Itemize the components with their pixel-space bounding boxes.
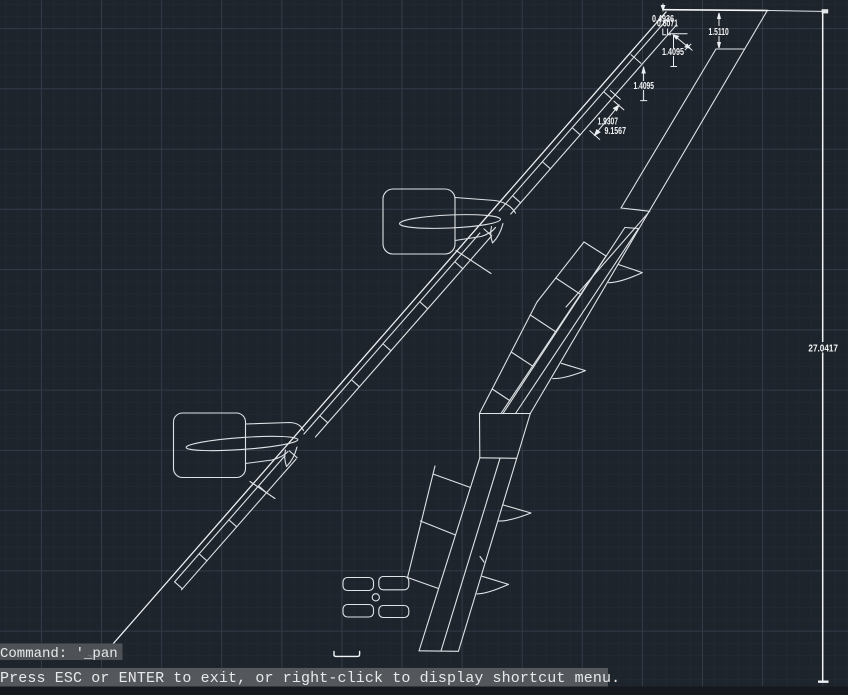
svg-text:9.1567: 9.1567: [605, 126, 627, 137]
svg-text:27.0417: 27.0417: [808, 343, 838, 354]
svg-text:Press ESC or ENTER to exit, or: Press ESC or ENTER to exit, or right-cli…: [0, 670, 620, 687]
svg-text:0.6071: 0.6071: [657, 19, 678, 30]
svg-text:Command: '_pan: Command: '_pan: [0, 646, 118, 662]
svg-text:1.5110: 1.5110: [709, 27, 729, 38]
svg-text:1.4095: 1.4095: [662, 47, 684, 58]
svg-text:1.4095: 1.4095: [634, 81, 655, 92]
